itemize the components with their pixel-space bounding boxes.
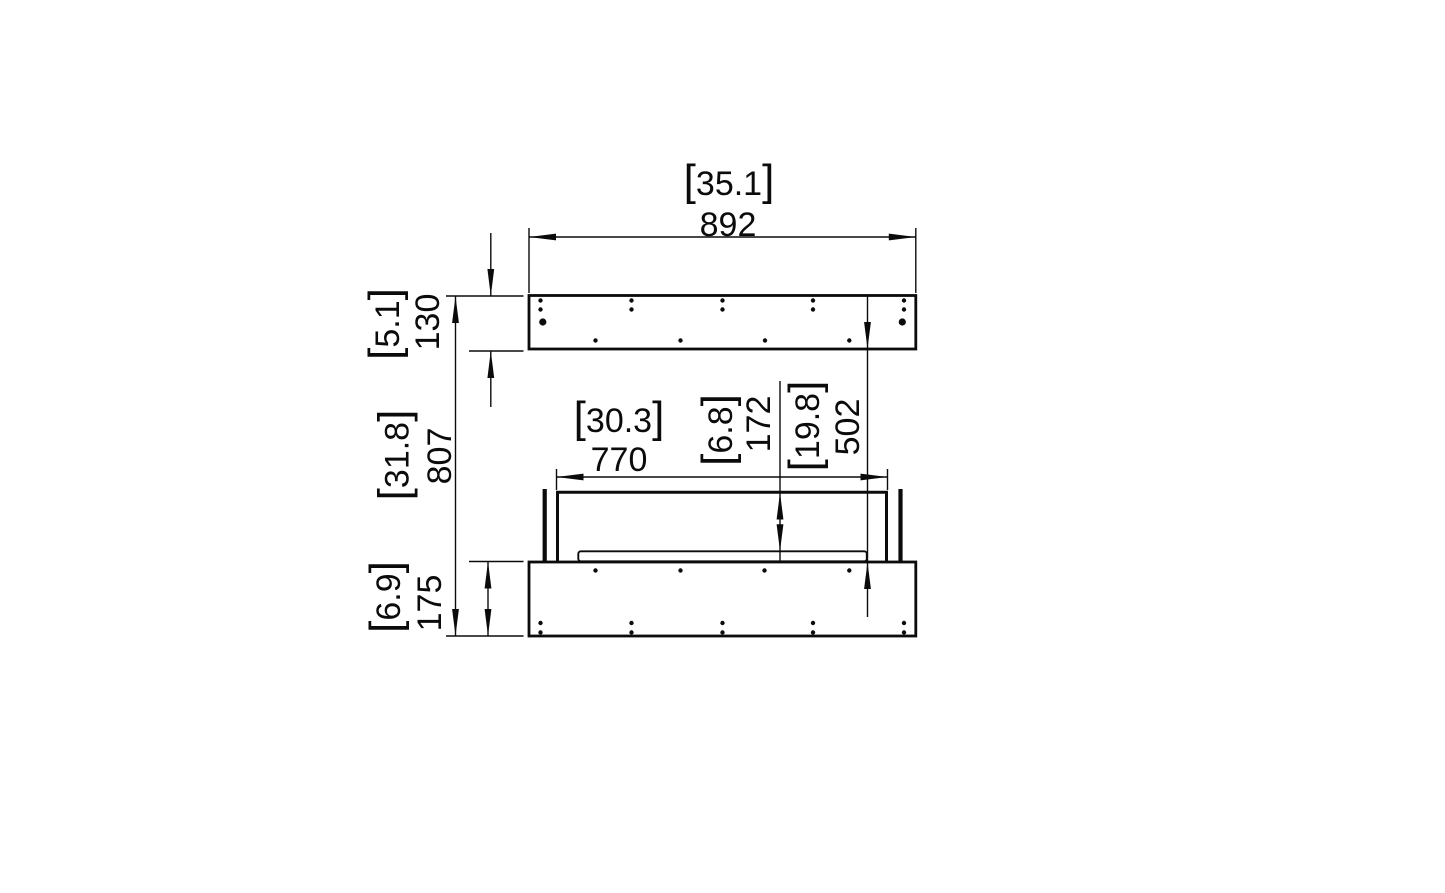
hole-dot	[720, 298, 724, 302]
dim-base-height-mm: 175	[411, 575, 449, 632]
arrowhead-right	[889, 234, 916, 241]
hole-dot	[811, 630, 815, 634]
hole-dot	[538, 630, 542, 634]
hole-dot	[902, 630, 906, 634]
dim-overall-height-mm: 807	[421, 428, 459, 485]
right-side-flange	[898, 489, 902, 562]
arrowhead-up	[452, 296, 459, 323]
hole-dot	[720, 307, 724, 311]
dim-mid-clearance-inches: [19.8]	[780, 381, 829, 472]
hole-dot	[811, 621, 815, 625]
hole-dot	[629, 307, 633, 311]
hole-dot	[902, 307, 906, 311]
dim-opening-depth-inches: [6.8]	[693, 394, 742, 466]
dim-opening-width-inches: [30.3]	[574, 393, 665, 442]
base-assembly-group	[529, 489, 916, 636]
hole-dot	[593, 338, 597, 342]
dim-opening-depth: [6.8] 172	[693, 381, 783, 563]
hole-dot	[811, 307, 815, 311]
dim-top-panel-height: [5.1] 130	[360, 233, 524, 407]
hole-dot	[847, 568, 851, 572]
dim-overall-width: [35.1] 892	[529, 156, 916, 293]
hole-dot	[902, 621, 906, 625]
arrowhead-up	[777, 493, 784, 520]
dim-mid-clearance-mm: 502	[829, 399, 867, 456]
technical-drawing-page: [35.1] 892 [5.1] 130 [31.8] 807	[0, 0, 1445, 893]
hole-dot	[902, 298, 906, 302]
hole-dot	[593, 568, 597, 572]
hole-dot	[762, 568, 766, 572]
dim-opening-depth-mm: 172	[740, 396, 778, 453]
hole-dot	[538, 298, 542, 302]
top-panel-outline	[529, 296, 916, 350]
hole-dot	[847, 338, 851, 342]
arrowhead-down	[487, 269, 494, 296]
arrowhead-up	[485, 562, 492, 589]
dim-overall-height-inches: [31.8]	[370, 410, 419, 501]
arrowhead-down	[777, 524, 784, 551]
hole-dot	[763, 338, 767, 342]
arrowhead-left	[529, 234, 556, 241]
dim-top-panel-height-mm: 130	[409, 294, 447, 351]
dim-overall-width-mm: 892	[700, 206, 757, 244]
hole-dot	[629, 621, 633, 625]
hole-dot	[720, 621, 724, 625]
fixing-hole-dot	[899, 318, 906, 325]
hole-dot	[629, 630, 633, 634]
arrowhead-left	[557, 474, 584, 481]
hole-dot	[538, 621, 542, 625]
hole-dot	[538, 307, 542, 311]
dimension-drawing-canvas: [35.1] 892 [5.1] 130 [31.8] 807	[0, 0, 1445, 893]
hole-dot	[811, 298, 815, 302]
arrowhead-up	[487, 351, 494, 378]
burner-insert-strip	[578, 551, 867, 561]
arrowhead-down	[485, 609, 492, 636]
hole-dot	[629, 298, 633, 302]
arrowhead-right	[861, 474, 888, 481]
dim-top-panel-height-inches: [5.1]	[360, 288, 409, 360]
fixing-hole-dot	[539, 318, 546, 325]
hole-dot	[720, 630, 724, 634]
dim-opening-width-mm: 770	[591, 441, 648, 479]
hole-dot	[678, 338, 682, 342]
arrowhead-down	[452, 609, 459, 636]
top-panel-group	[529, 296, 916, 350]
left-side-flange	[543, 489, 547, 562]
hole-dot	[678, 568, 682, 572]
dim-base-height: [6.9] 175	[361, 561, 524, 636]
dim-base-height-inches: [6.9]	[361, 561, 410, 633]
dim-overall-width-inches: [35.1]	[684, 156, 775, 205]
